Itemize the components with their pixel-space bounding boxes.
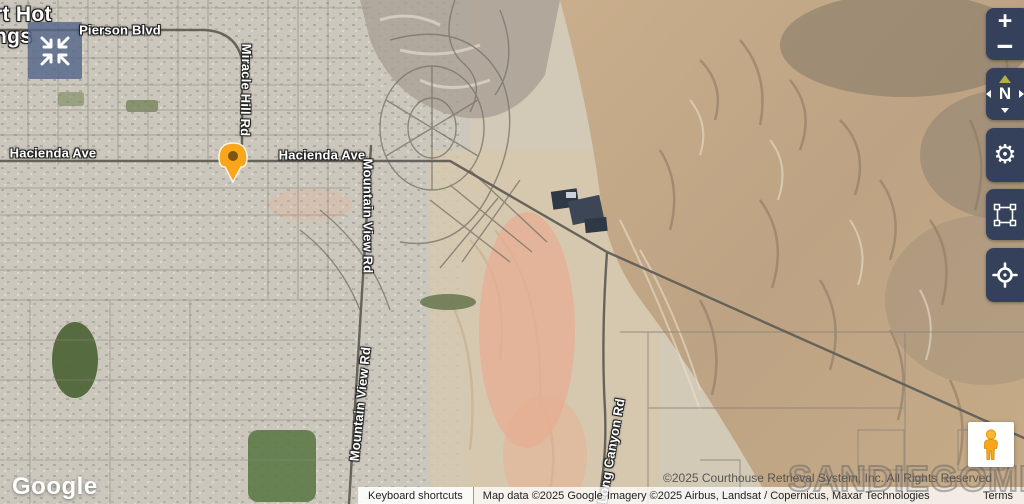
map-data-text: Map data ©2025 Google: [474, 490, 607, 502]
compass-control[interactable]: N: [986, 68, 1024, 120]
gear-icon: ⚙: [993, 142, 1016, 168]
satellite-imagery: [0, 0, 1024, 504]
keyboard-shortcuts-button[interactable]: Keyboard shortcuts: [358, 487, 474, 504]
attribution-bar: Keyboard shortcuts Map data ©2025 Google…: [358, 487, 1024, 504]
polygon-select-icon: [993, 203, 1017, 227]
crosshair-locate-icon: [992, 262, 1018, 288]
property-marker-pin[interactable]: [215, 139, 251, 190]
google-logo[interactable]: Google: [12, 473, 98, 501]
collapse-arrows-icon: [38, 34, 72, 68]
street-view-pegman-button[interactable]: [968, 422, 1014, 467]
my-location-button[interactable]: [986, 248, 1024, 302]
compass-n-label: N: [999, 84, 1011, 104]
settings-button[interactable]: ⚙: [986, 128, 1024, 182]
draw-boundary-button[interactable]: [986, 189, 1024, 240]
pegman-icon: [978, 428, 1004, 462]
map-canvas[interactable]: rt Hot ngs Pierson Blvd Miracle Hill Rd …: [0, 0, 1024, 504]
compass-rotate-left-icon[interactable]: [986, 90, 991, 98]
terms-link[interactable]: Terms: [972, 490, 1024, 502]
imagery-credits-text: Imagery ©2025 Airbus, Landsat / Copernic…: [607, 490, 930, 502]
compass-south-icon: [1001, 108, 1009, 113]
compass-north-needle-icon: [999, 75, 1011, 83]
mls-logo-watermark: [28, 22, 82, 79]
zoom-out-button[interactable]: −: [986, 34, 1024, 60]
zoom-control: + −: [986, 8, 1024, 60]
compass-rotate-right-icon[interactable]: [1019, 90, 1024, 98]
